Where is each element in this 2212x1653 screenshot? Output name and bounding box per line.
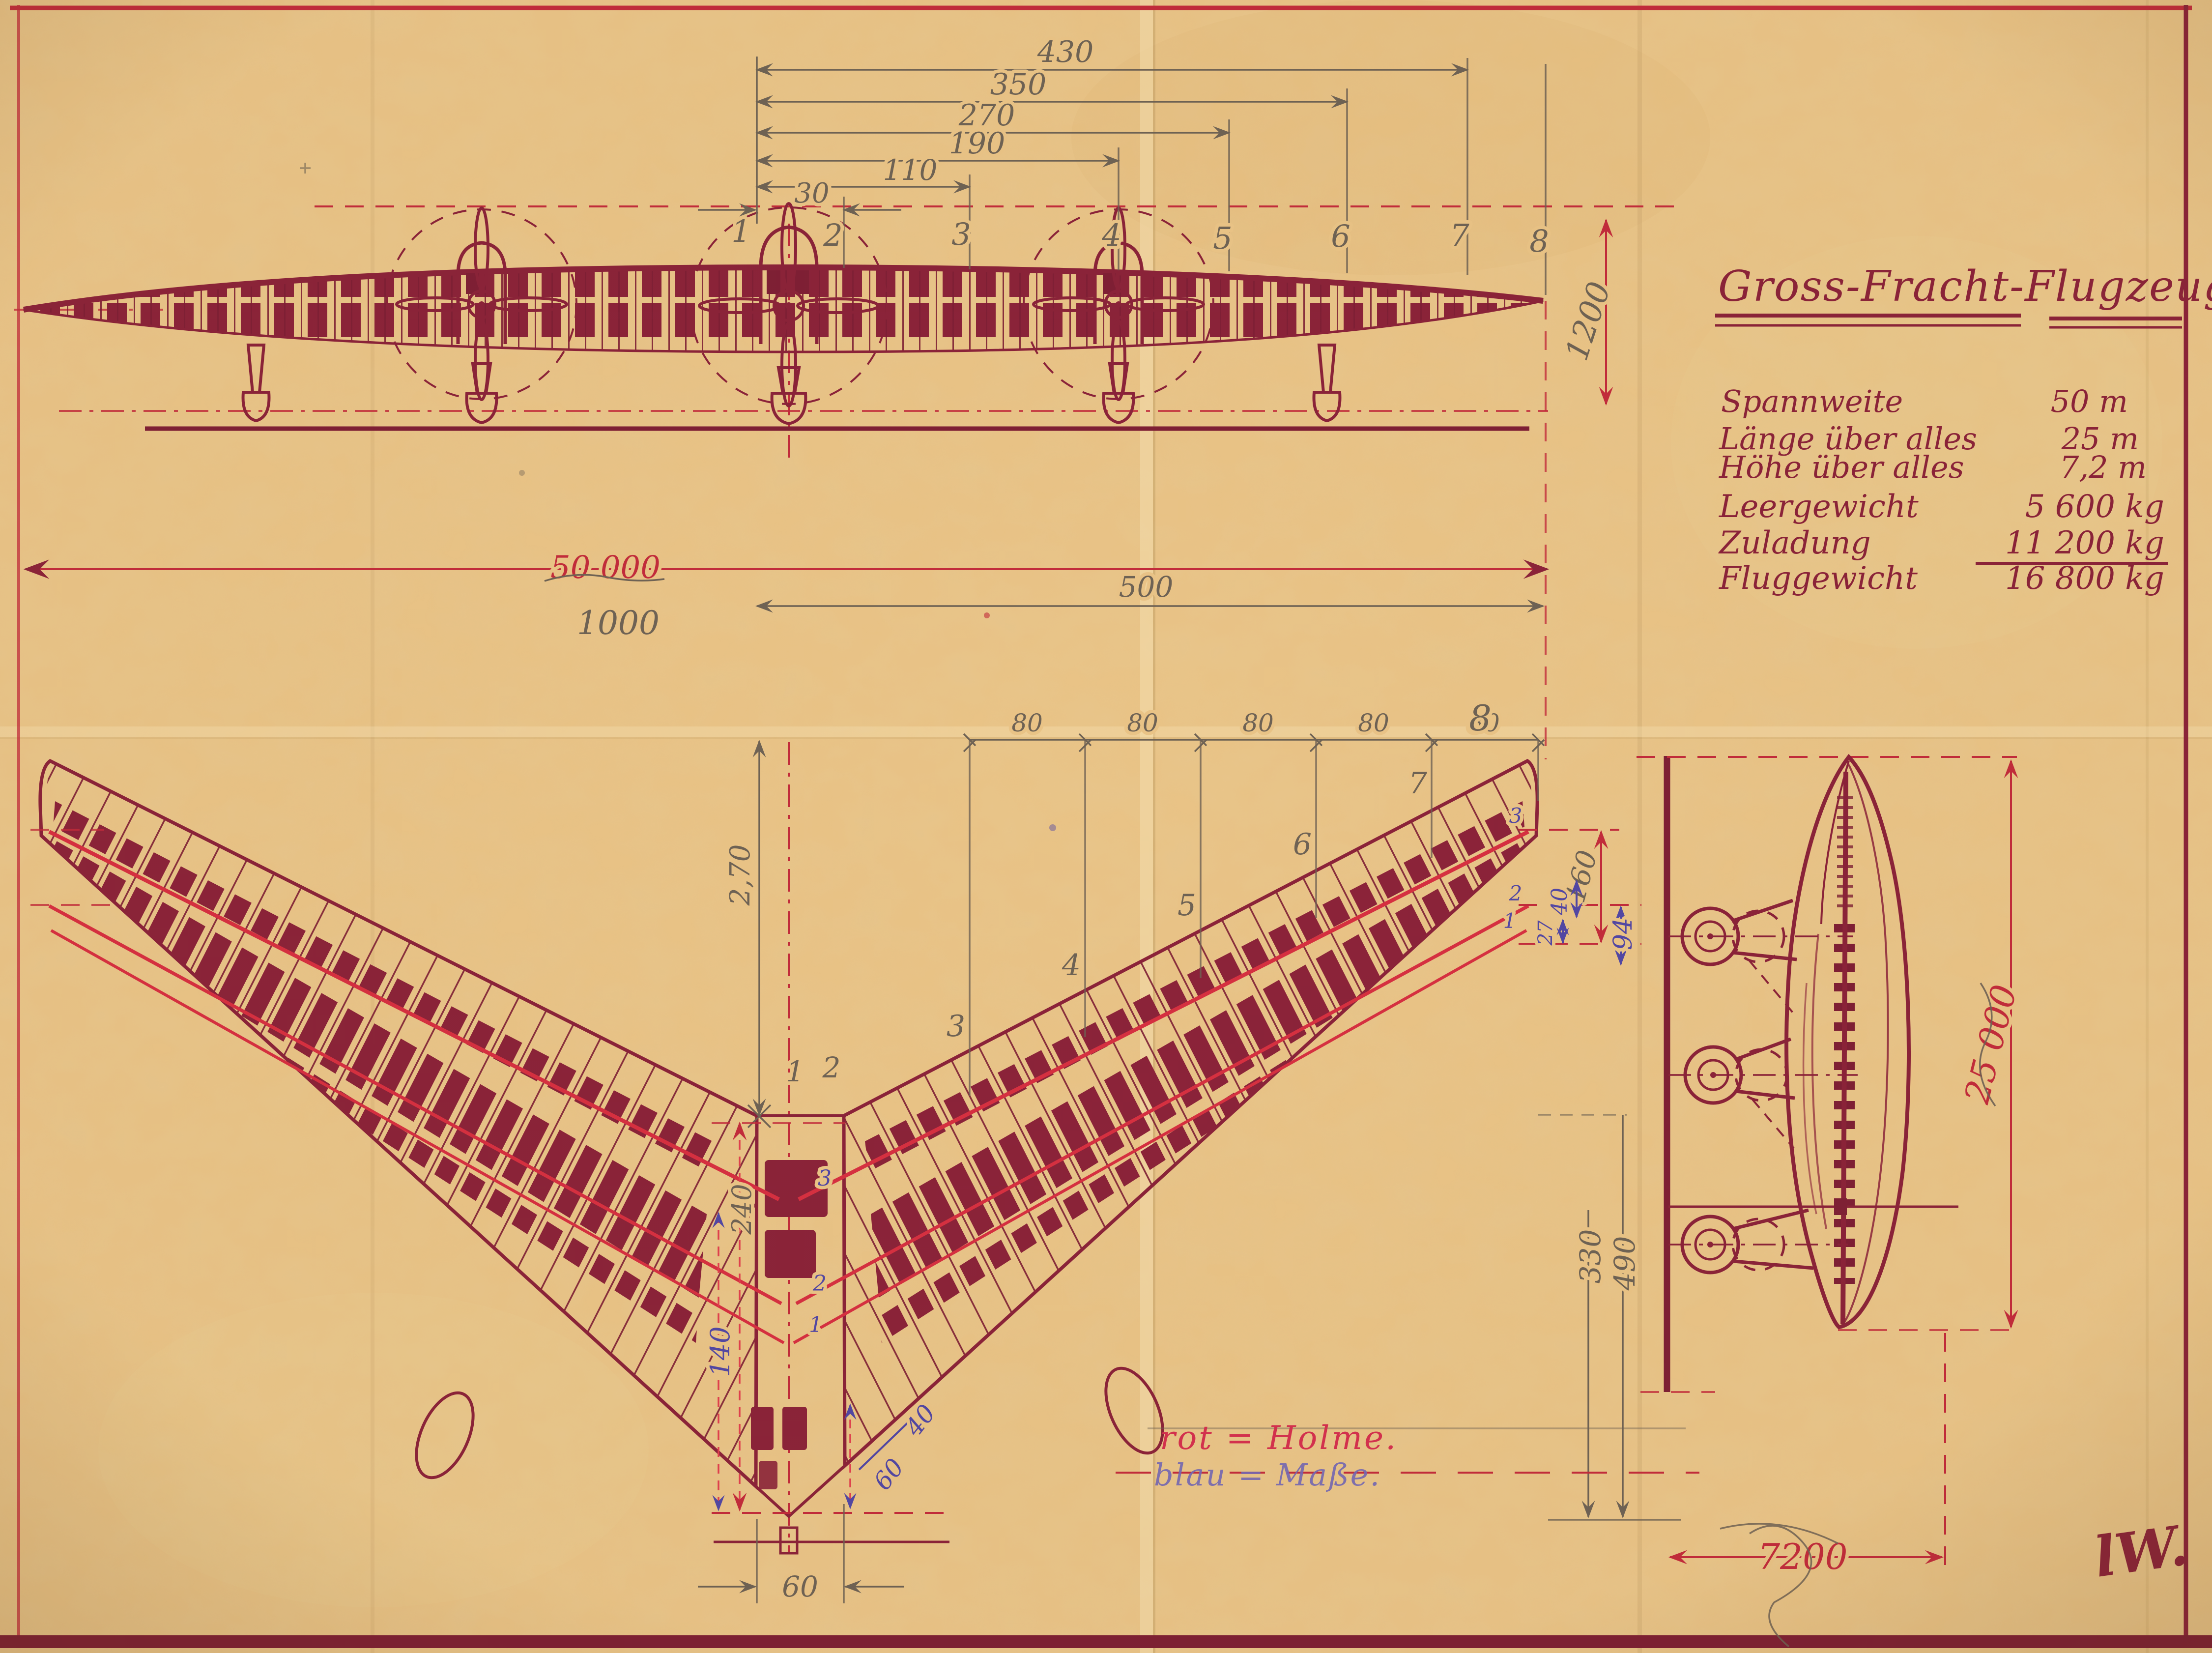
blueprint-canvas: Gross-Fracht-Flugzeug. Spannweite 50 m L… xyxy=(0,0,2212,1653)
drawing-sheet: Gross-Fracht-Flugzeug. Spannweite 50 m L… xyxy=(0,0,2212,1653)
vignette-overlay xyxy=(0,0,2212,1653)
